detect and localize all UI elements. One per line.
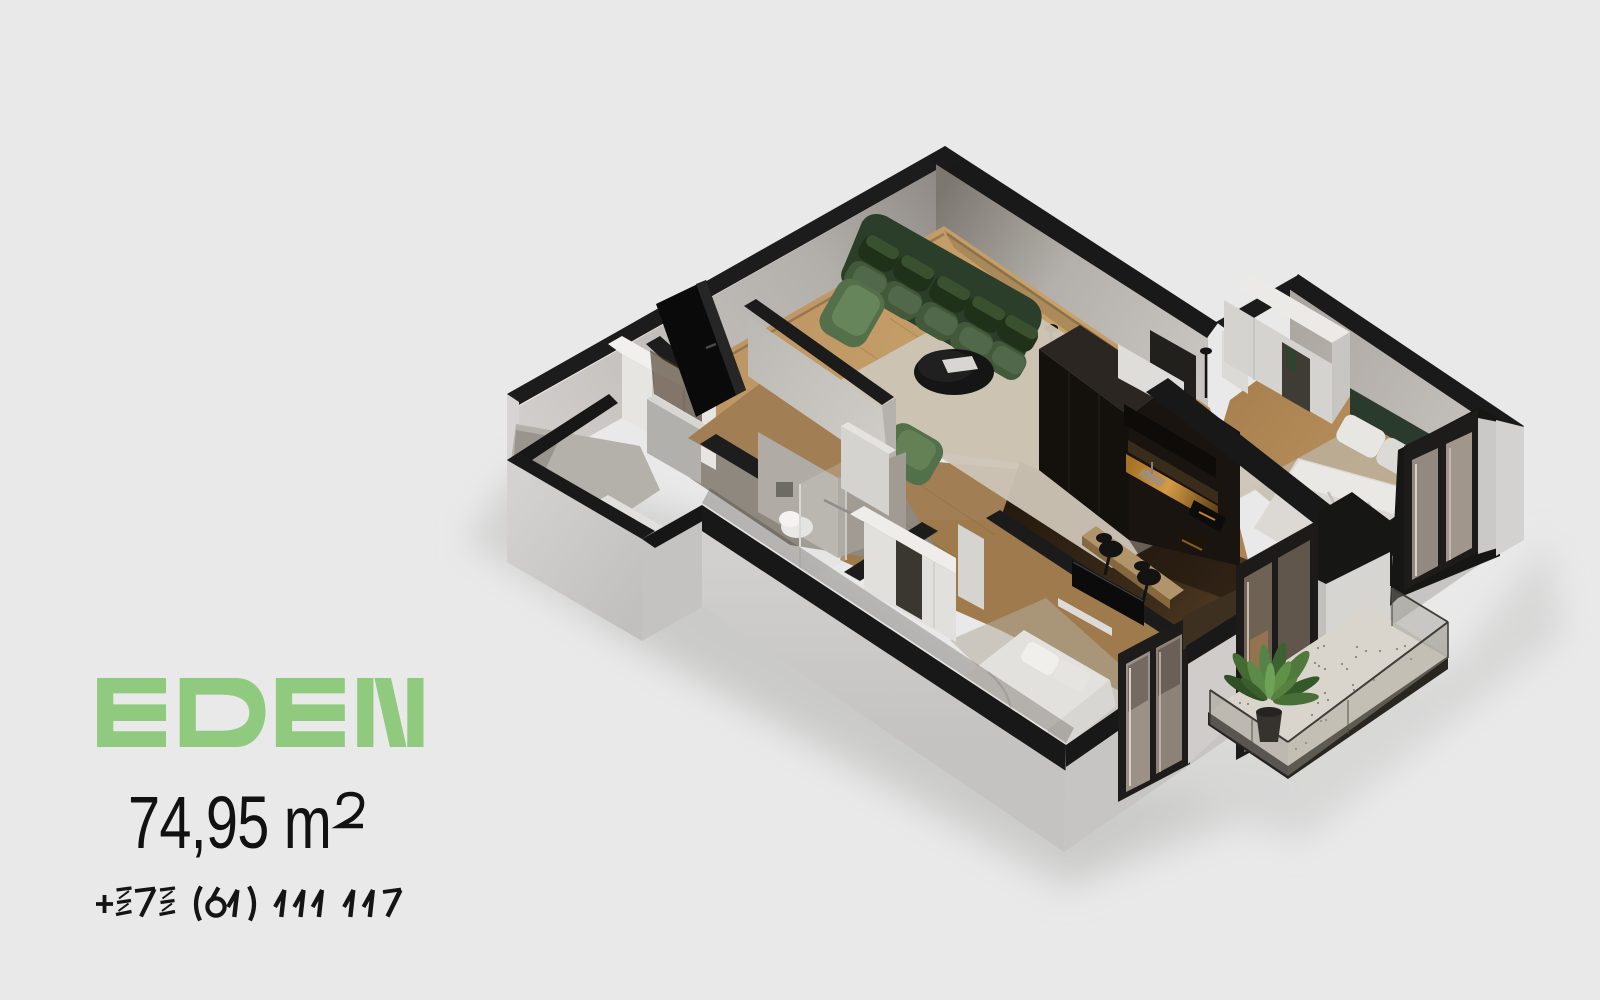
svg-text:74,95 m: 74,95 m xyxy=(128,782,331,865)
